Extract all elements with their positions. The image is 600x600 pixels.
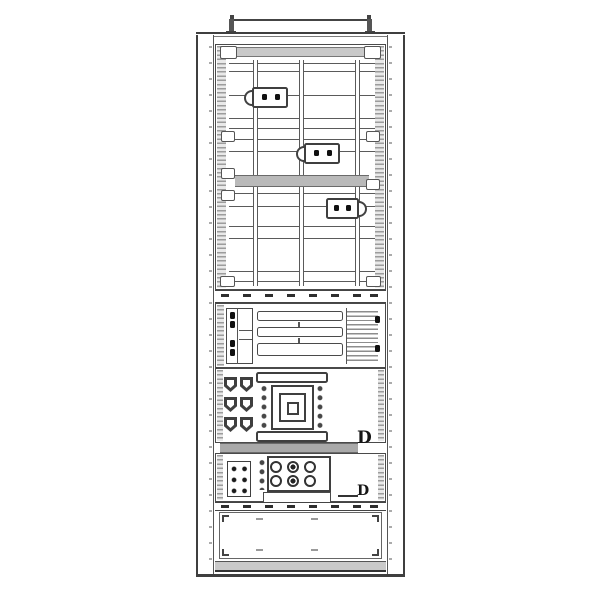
slot-tick [298,322,300,327]
corner-bracket [220,276,235,287]
terminal-block-rung [239,330,252,331]
terminal-dot [230,312,235,319]
cabinet-bottom-edge [196,574,405,577]
branch-device-2 [304,143,340,164]
panel-mark [256,549,263,551]
panel-mark [256,518,263,520]
feeder-label-lower: D [357,484,369,498]
louver-dot [375,345,380,352]
frame-tick-strip [389,46,392,566]
terminal-dash [287,294,295,297]
compartment-hatch-right [375,46,384,288]
busbar-shade-band [235,175,369,187]
top-plate [196,32,405,34]
corner-bracket [220,46,237,59]
terminal-dash [370,294,378,297]
busbar-band-upper [220,443,358,453]
terminal-dash [265,294,273,297]
frame-tick-strip [209,46,212,566]
vertical-busbar [355,60,360,286]
compartment-hatch-right [378,455,384,500]
rail-dash [353,505,361,508]
device-terminal-dot [327,150,332,156]
acb-bottom-bar [256,431,328,442]
acb-frame-inner [287,402,299,415]
louver-panel [346,308,378,364]
terminal-dash [331,294,339,297]
device-terminal-dot [334,205,339,211]
rail-dash [243,505,251,508]
terminal-dot [230,349,235,356]
drawer-slot [257,343,343,356]
contactor-pole [304,475,316,487]
mounting-tab [221,190,235,201]
corner-clip [222,549,229,556]
acb-top-bar [256,372,328,383]
contactor-pole [287,461,299,473]
contactor-pole [287,475,299,487]
compartment-hatch-left [217,370,223,441]
contactor-terminal-row [257,458,267,490]
corner-bracket [364,46,381,59]
compartment-hatch-right [378,370,384,441]
plinth [215,561,386,572]
terminal-block-divider [237,308,238,364]
corner-clip [372,549,379,556]
branch-device-3 [326,198,359,219]
rail-dash [265,505,273,508]
rail-dash [221,505,229,508]
lifting-bar [231,19,371,21]
aux-terminal-block [227,461,251,497]
cabinet-elevation-drawing: D D [0,0,600,600]
terminal-dot [230,340,235,347]
mounting-tab [366,131,380,142]
device-terminal-dot [314,150,319,156]
feeder-label-upper: D [357,430,372,447]
device-terminal-dot [346,205,351,211]
compartment-hatch-left [217,455,223,500]
contactor-pole [270,461,282,473]
terminal-dash [221,294,229,297]
corner-clip [222,515,229,522]
slot-tick [298,338,300,343]
rail-dash [370,505,378,508]
terminal-dash [309,294,317,297]
contactor-pole [270,475,282,487]
vertical-busbar [299,60,304,286]
louver-dot [375,316,380,323]
mounting-tab [221,168,235,179]
rail-dash [309,505,317,508]
mounting-tab [366,179,380,190]
corner-clip [372,515,379,522]
contactor-pole [304,461,316,473]
drawer-slot [257,311,343,321]
bottom-cover-panel [219,512,382,559]
corner-bracket [366,276,381,287]
acb-terminal-row-right [315,384,325,430]
terminal-block-rung [239,339,252,340]
top-plate-line [196,36,405,37]
panel-mark [311,518,318,520]
drawer-slot [257,327,343,337]
compartment-hatch-left [217,46,226,288]
feeder-line [338,495,358,497]
device-terminal-dot [262,94,267,100]
terminal-dot [230,321,235,328]
device-terminal-dot [275,94,280,100]
acb-terminal-row-left [259,384,269,430]
mounting-tab [221,131,235,142]
panel-mark [311,549,318,551]
branch-device-1 [252,87,288,108]
rail-dash [287,505,295,508]
compartment-hatch-left [217,305,224,366]
terminal-dash [353,294,361,297]
top-rail [227,47,374,57]
terminal-dash [243,294,251,297]
rail-dash [331,505,339,508]
